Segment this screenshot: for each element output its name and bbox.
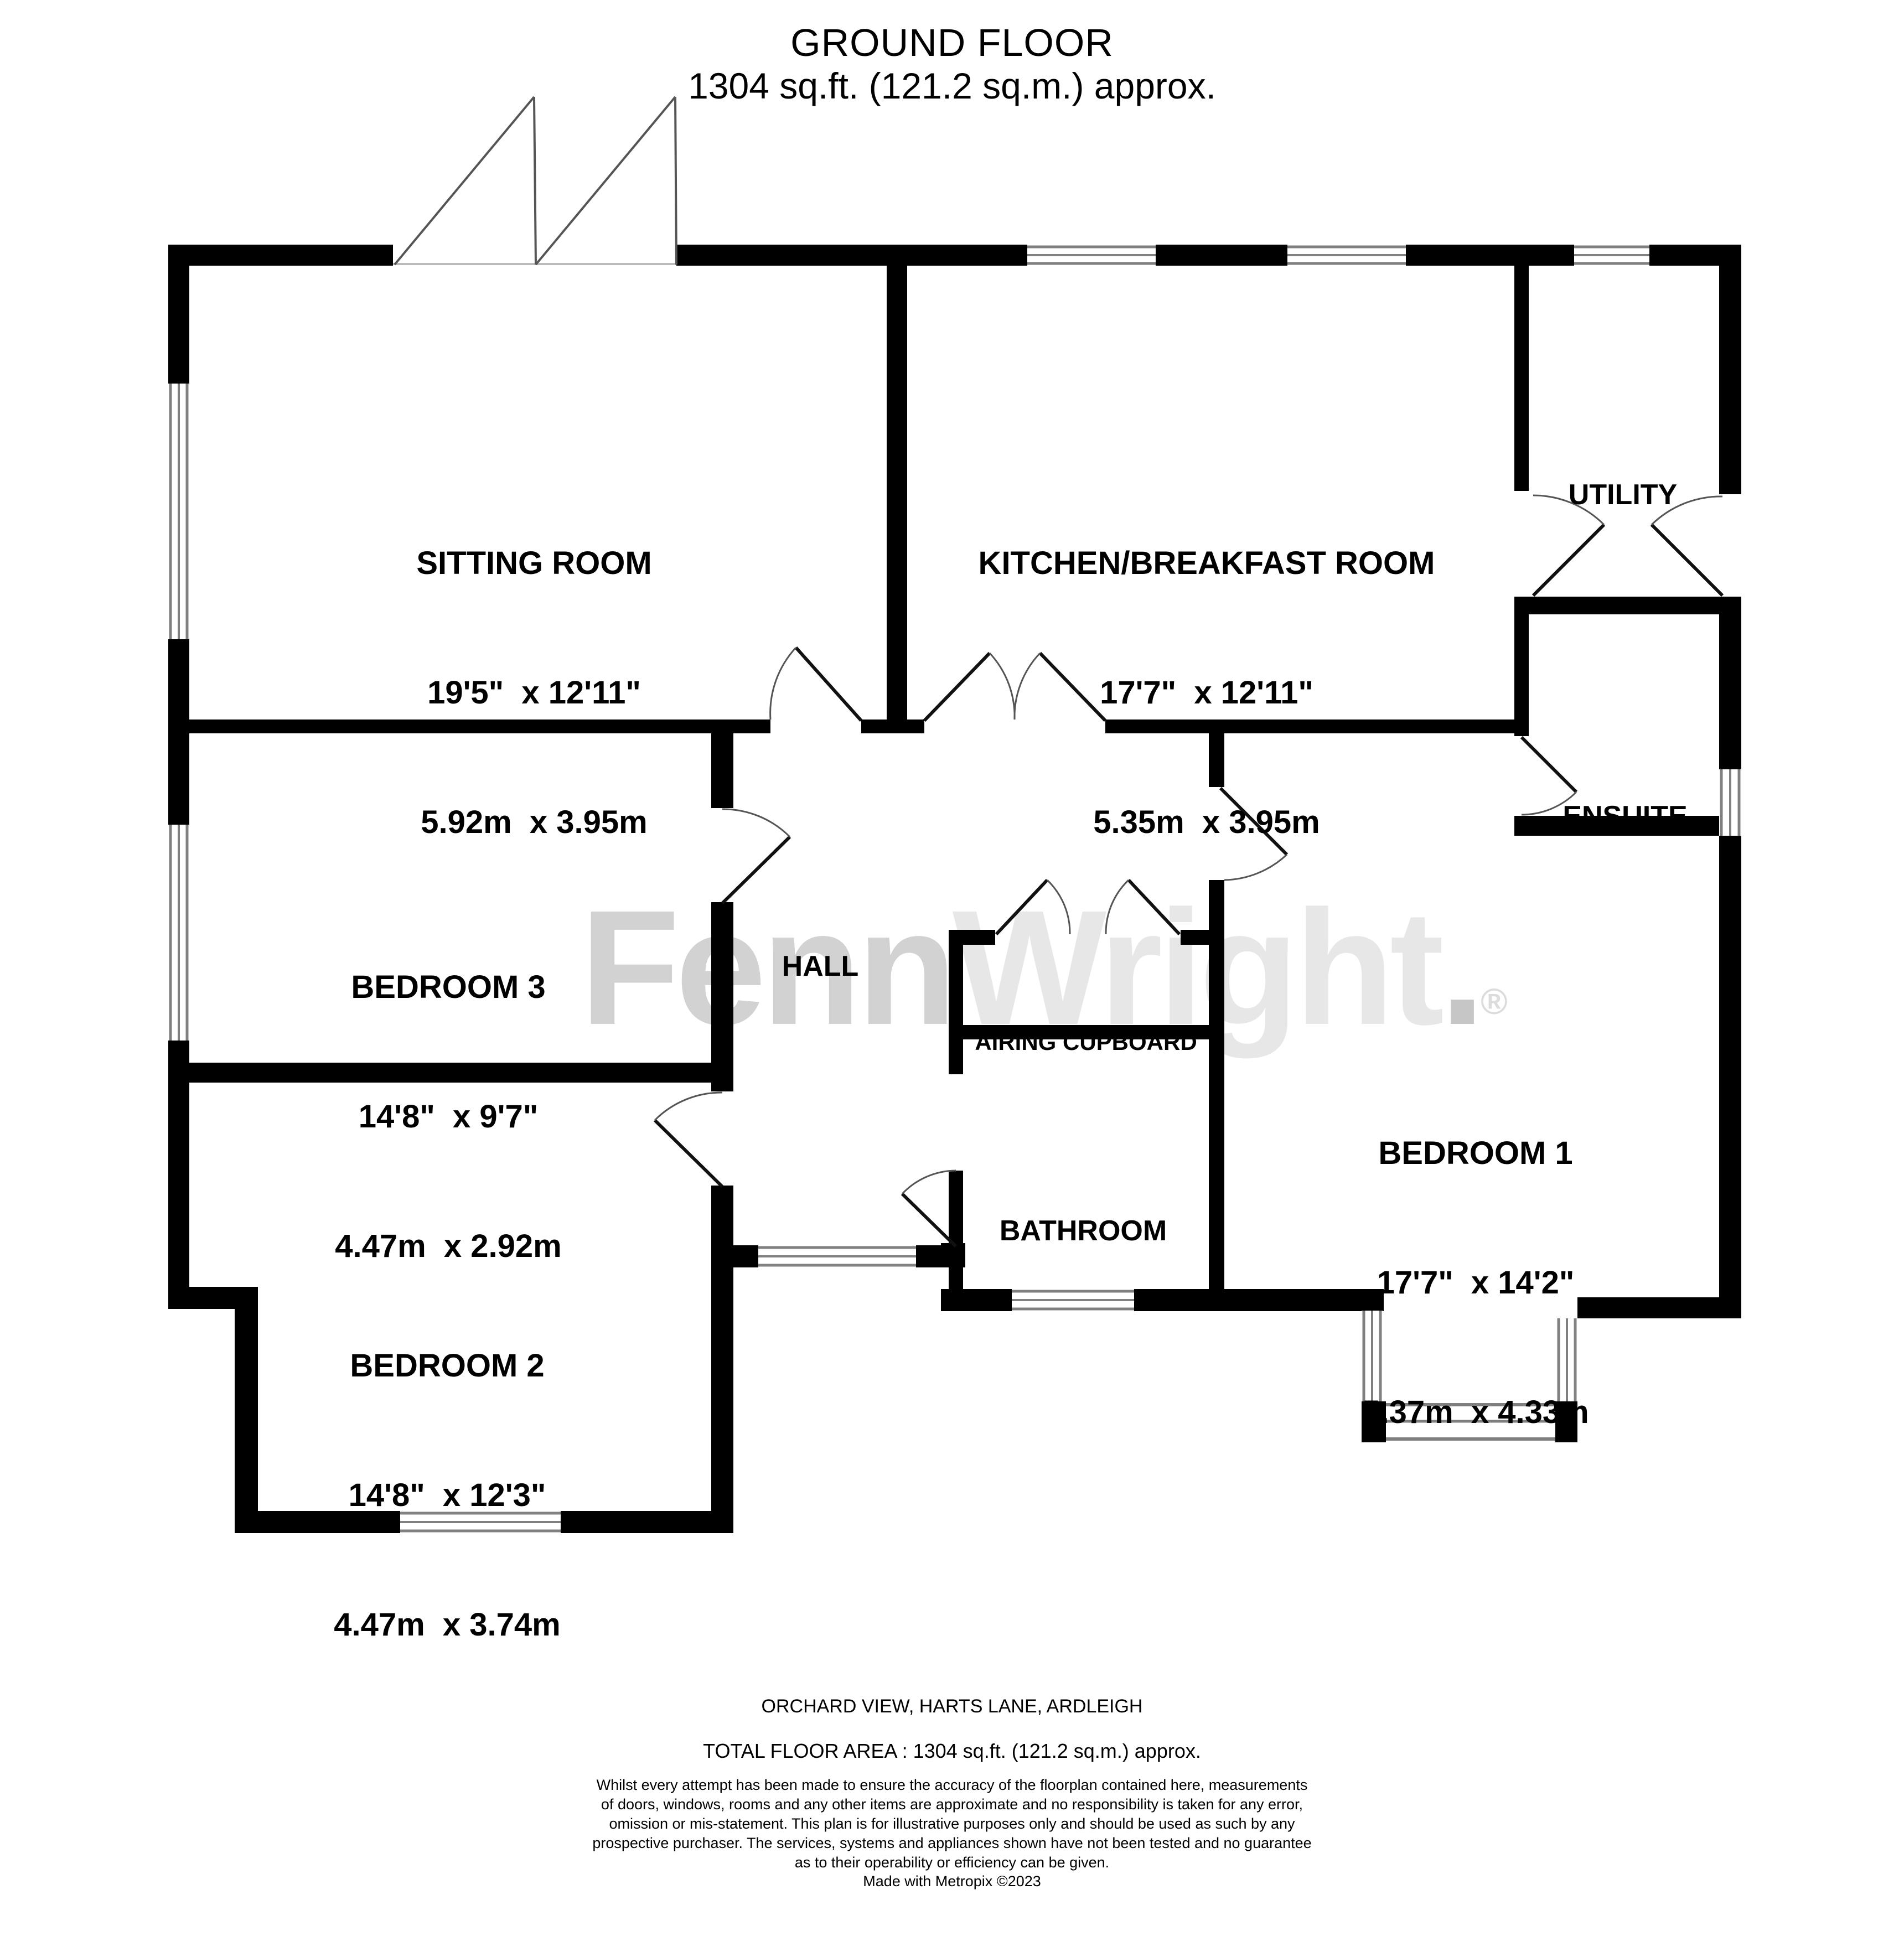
floorplan-drawing [0,0,1904,1941]
room-name: HALL [782,951,859,982]
disclaimer-line: as to their operability or efficiency ca… [0,1853,1904,1872]
room-label-hall: HALL [782,889,859,1044]
room-label-bedroom-2: BEDROOM 2 14'8" x 12'3" 4.47m x 3.74m [334,1258,561,1733]
room-name: BEDROOM 3 [335,966,562,1009]
room-name: ENSUITE [1562,801,1687,832]
door [655,1093,722,1187]
room-name: BEDROOM 1 [1362,1132,1589,1175]
room-name: KITCHEN/BREAKFAST ROOM [979,542,1435,585]
door [722,809,790,903]
room-label-airing-cupboard: AIRING CUPBOARD [975,979,1197,1106]
window [758,1245,916,1267]
door [902,1171,956,1246]
window [1287,245,1406,266]
window [168,384,189,639]
total-floor-area: TOTAL FLOOR AREA : 1304 sq.ft. (121.2 sq… [0,1740,1904,1763]
disclaimer-text: Whilst every attempt has been made to en… [0,1776,1904,1872]
disclaimer-line: prospective purchaser. The services, sys… [0,1834,1904,1853]
room-label-bedroom-1: BEDROOM 1 17'7" x 14'2" 5.37m x 4.33m [1362,1045,1589,1520]
room-name: UTILITY [1569,479,1677,510]
room-label-kitchen: KITCHEN/BREAKFAST ROOM 17'7" x 12'11" 5.… [979,456,1435,930]
room-label-ensuite: ENSUITE [1562,739,1687,894]
room-dims-imperial: 17'7" x 14'2" [1362,1261,1589,1305]
disclaimer-line: Whilst every attempt has been made to en… [0,1776,1904,1795]
room-name: SITTING ROOM [416,542,651,585]
window [1719,769,1741,836]
room-dims-imperial: 14'8" x 12'3" [334,1474,561,1517]
room-dims-imperial: 14'8" x 9'7" [335,1095,562,1138]
room-name: BEDROOM 2 [334,1344,561,1388]
disclaimer-line: of doors, windows, rooms and any other i… [0,1795,1904,1814]
window [168,825,189,1041]
metropix-credit: Made with Metropix ©2023 [0,1873,1904,1890]
room-dims-metric: 5.92m x 3.95m [416,801,651,844]
room-label-utility: UTILITY [1569,417,1677,572]
room-dims-metric: 5.35m x 3.95m [979,801,1435,844]
french-doors [393,97,676,265]
disclaimer-line: omission or mis-statement. This plan is … [0,1814,1904,1834]
window [1574,245,1649,266]
window [1027,245,1156,266]
room-dims-metric: 4.47m x 3.74m [334,1603,561,1647]
floorplan-page: GROUND FLOOR 1304 sq.ft. (121.2 sq.m.) a… [0,0,1904,1941]
property-address: ORCHARD VIEW, HARTS LANE, ARDLEIGH [0,1696,1904,1717]
room-label-bathroom: BATHROOM [1000,1153,1167,1308]
room-dims-metric: 5.37m x 4.33m [1362,1391,1589,1434]
room-label-sitting-room: SITTING ROOM 19'5" x 12'11" 5.92m x 3.95… [416,456,651,930]
room-dims-imperial: 19'5" x 12'11" [416,671,651,715]
room-name: BATHROOM [1000,1215,1167,1246]
room-dims-imperial: 17'7" x 12'11" [979,671,1435,715]
room-name: AIRING CUPBOARD [975,1029,1197,1055]
door [770,648,861,721]
